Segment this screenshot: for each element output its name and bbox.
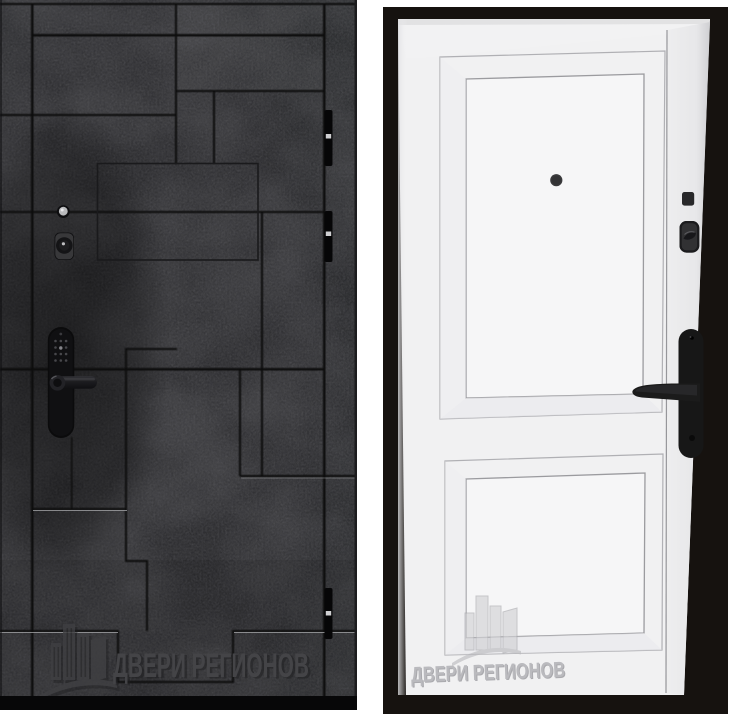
svg-text:ДВЕРИ РЕГИОНОВ: ДВЕРИ РЕГИОНОВ (113, 647, 309, 685)
